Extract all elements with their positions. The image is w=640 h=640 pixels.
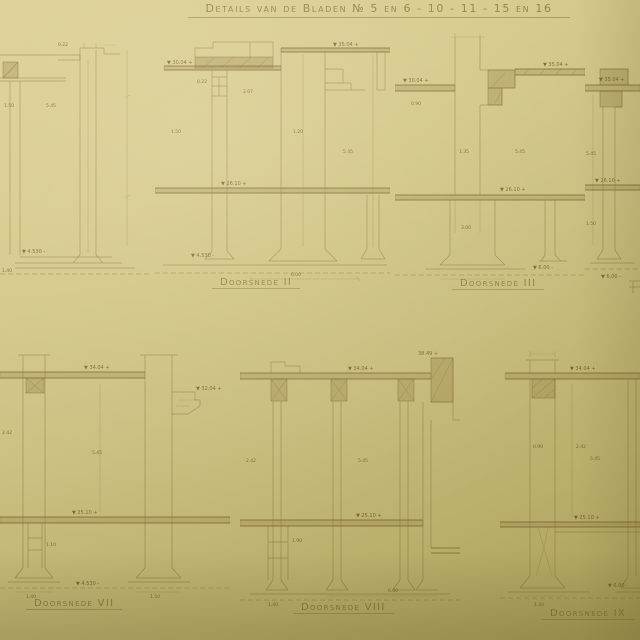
dim-text: 5.45	[358, 458, 368, 464]
section-right-partial-svg: ▼ 35.04 + ▼ 26.10 + ▼ 6.00 - 5.45 1.50	[585, 35, 640, 295]
dim-text: 3.00	[461, 225, 471, 231]
section-label-doorsnede-viii: Doorsnede VIII	[293, 602, 394, 614]
dim-text: 2.07	[243, 89, 253, 95]
dim-text: 5.45	[343, 149, 353, 155]
dim-text: 5.45	[590, 456, 600, 462]
doorsnede-vii-svg: ▼ 34.04 + ▼ 32.04 + ▼ 25.10 + ▼ 4.530 - …	[0, 342, 230, 600]
dim-text: 2.42	[2, 430, 12, 436]
dim-text: 1.50	[4, 103, 14, 109]
drawing-doorsnede-vii: ▼ 34.04 + ▼ 32.04 + ▼ 25.10 + ▼ 4.530 - …	[0, 342, 230, 600]
dim-text: 1.50	[586, 221, 596, 227]
level-text: ▼ 6.00 -	[608, 583, 628, 589]
level-text: ▼ 25.10 +	[356, 513, 382, 519]
dim-text: 1.50	[150, 594, 160, 600]
dim-text: 5.45	[515, 149, 525, 155]
dim-text: 5.45	[586, 151, 596, 157]
drawing-doorsnede-iii: ▼ 35.04 + ▼ 30.04 + ▼ 26.10 + ▼ 6.00 - 1…	[395, 33, 585, 285]
section-label-doorsnede-ix: Doorsnede IX	[542, 608, 634, 620]
level-text: ▼ 6.00 -	[601, 274, 621, 280]
level-text: ▼ 6.00 -	[533, 265, 553, 271]
linework	[155, 42, 390, 281]
dim-text: 0.90	[533, 444, 543, 450]
level-text: ▼ 25.10 +	[72, 510, 98, 516]
dim-text: 5.45	[92, 450, 102, 456]
dim-text: 6.00	[388, 588, 398, 594]
level-text: ▼ 4.530 -	[22, 249, 45, 255]
dim-text: 1.35	[459, 149, 469, 155]
drawing-section-left-partial: 1.50 5.45 ▼ 4.530 - 1.40 0.22	[0, 38, 155, 280]
level-text: ▼ 25.10 +	[574, 515, 600, 521]
drawing-doorsnede-ii: ▼ 35.04 + ▼ 30.04 + ▼ 26.10 + ▼ 4.530 - …	[155, 33, 390, 285]
drawing-doorsnede-viii: ▼ 34.04 + 38.49 + ▼ 25.10 + 6.00 1.90 5.…	[240, 342, 460, 608]
dim-text: 1.50	[171, 129, 181, 135]
level-text: ▼ 26.10 +	[595, 178, 621, 184]
linework	[395, 33, 585, 279]
drawing-section-right-partial: ▼ 35.04 + ▼ 26.10 + ▼ 6.00 - 5.45 1.50	[585, 35, 640, 295]
doorsnede-ix-svg: ▼ 34.04 + ▼ 25.10 + 2.42 0.90 5.45 1.40 …	[500, 348, 640, 620]
sheet-title: Details van de Bladen № 5 en 6 - 10 - 11…	[188, 2, 570, 18]
level-text: ▼ 34.04 +	[348, 366, 374, 372]
dim-text: 1.20	[293, 129, 303, 135]
doorsnede-ii-svg: ▼ 35.04 + ▼ 30.04 + ▼ 26.10 + ▼ 4.530 - …	[155, 33, 390, 285]
drawing-doorsnede-ix: ▼ 34.04 + ▼ 25.10 + 2.42 0.90 5.45 1.40 …	[500, 348, 640, 620]
level-text: ▼ 32.04 +	[196, 386, 222, 392]
level-text: ▼ 34.04 +	[570, 366, 596, 372]
dim-text: 2.42	[246, 458, 256, 464]
dim-text: 1.90	[292, 538, 302, 544]
dim-text: 0.22	[197, 79, 207, 85]
linework	[500, 351, 640, 598]
level-text: ▼ 4.530 -	[191, 253, 214, 259]
section-label-doorsnede-ii: Doorsnede II	[212, 277, 300, 289]
dim-text: 5.45	[46, 103, 56, 109]
section-label-doorsnede-iii: Doorsnede III	[452, 278, 544, 290]
linework	[0, 43, 152, 274]
dim-text: 1.40	[268, 602, 278, 608]
section-label-doorsnede-vii: Doorsnede VII	[26, 598, 122, 610]
level-text: ▼ 35.04 +	[599, 77, 625, 83]
dim-text: 0.90	[411, 101, 421, 107]
dim-text: 1.40	[2, 268, 12, 274]
doorsnede-iii-svg: ▼ 35.04 + ▼ 30.04 + ▼ 26.10 + ▼ 6.00 - 1…	[395, 33, 585, 285]
level-text: ▼ 30.04 +	[403, 78, 429, 84]
section-left-partial-svg: 1.50 5.45 ▼ 4.530 - 1.40 0.22	[0, 38, 155, 280]
level-text: 38.49 +	[418, 351, 438, 357]
level-text: ▼ 35.04 +	[543, 62, 569, 68]
dim-text: 0.22	[58, 42, 68, 48]
doorsnede-viii-svg: ▼ 34.04 + 38.49 + ▼ 25.10 + 6.00 1.90 5.…	[240, 342, 460, 608]
dim-text: 2.42	[576, 444, 586, 450]
level-text: ▼ 4.530 -	[76, 581, 99, 587]
linework	[240, 358, 460, 600]
level-text: ▼ 35.04 +	[333, 42, 359, 48]
dim-text: 1.10	[46, 542, 56, 548]
level-text: ▼ 30.04 +	[167, 60, 193, 66]
level-text: ▼ 34.04 +	[84, 365, 110, 371]
drawing-sheet: Details van de Bladen № 5 en 6 - 10 - 11…	[0, 0, 640, 640]
level-text: ▼ 26.10 +	[221, 181, 247, 187]
level-text: ▼ 26.10 +	[500, 187, 526, 193]
